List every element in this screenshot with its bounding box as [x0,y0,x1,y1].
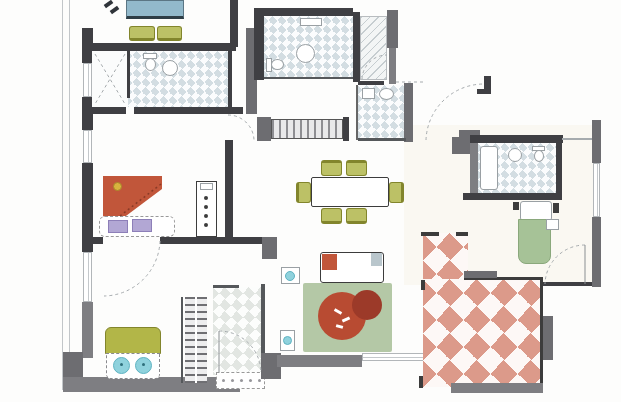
bed-tray [546,219,559,230]
living-stub-wall [262,237,277,259]
hall-door-stub-h [477,89,491,94]
bath-shelf [300,18,322,26]
terrace-tiles-main [423,279,543,387]
terrace-tick-4 [419,376,423,388]
bathroom-right-bottom-wall [463,193,562,200]
grill-mark-1 [104,0,114,8]
window-left-3 [83,252,92,302]
window-left-2 [83,130,92,163]
doormat-dots [222,379,225,382]
right-wing-top-line [562,138,594,140]
nightstand-left [513,202,519,210]
toilet-3-bowl [534,150,544,162]
bathroom-top-left-right-wall [228,51,232,107]
bathroom-center-left-wall [254,16,264,80]
stairs-center-rail [195,297,197,383]
plant-canopy-small [352,290,382,320]
dining-chair-bottom-1 [321,208,342,224]
closet-hatched-floor [360,16,387,80]
nightstand-right [553,203,559,213]
wall-bottom-left [63,377,240,392]
balcony-railing [62,0,70,390]
terrace-wall-right [543,316,553,360]
bookshelf-dots [204,196,208,200]
wardrobe-left-cap [257,117,271,141]
wardrobe-right-cap [343,117,349,141]
wc-left-wall [356,85,358,140]
toilet-2-bowl [271,59,284,70]
bathroom-right-top-wall [470,135,563,143]
floor-plan [0,0,621,402]
sofa-gray-cushion [371,253,382,266]
pillow-dot-2 [142,363,145,366]
closet-right-wall-thick [387,10,398,48]
right-wall-seg1 [592,120,601,163]
single-bed-pillow [520,201,552,221]
shower-right [480,146,498,190]
dining-chair-right [389,182,404,203]
bathroom-closet-divider [353,12,360,82]
sink-2 [296,44,315,63]
study-door-arc [228,115,254,140]
wall-h3-b [134,107,243,114]
wall-h5-b [160,237,277,244]
dining-chair-bottom-2 [346,208,367,224]
corner-sofa-terracotta [103,176,162,219]
toilet-1-bowl [145,58,156,71]
living-bottom-wall [277,355,362,367]
dining-chair-top-2 [346,160,367,176]
balcony-chair-1 [129,26,155,41]
entry-hall-floor [213,287,261,375]
bathroom-right-right-wall [556,135,562,199]
wc-right-wall [404,83,413,142]
bathroom-right-left-wall [470,143,478,194]
wall-top-vertical [230,0,238,47]
wall-h5-a [83,237,103,244]
entry-right-wall [261,284,265,360]
side-table-2-bowl [283,336,292,345]
study-right-wall [225,140,233,237]
wc-cistern [362,88,375,99]
side-table-1-bowl [285,271,295,281]
wall-balcony-divider [90,43,236,51]
sofa-red-cushion [322,254,337,270]
wardrobe-body [271,119,343,139]
terrace-tick-1 [421,232,439,236]
entry-top-wall [213,285,239,288]
wc-bottom-wall [358,138,406,141]
sofa-yellow-cushion [113,182,122,191]
double-bed-duvet [105,327,161,354]
terrace-wall-bottom [451,383,543,393]
balcony-table [126,0,184,19]
bookshelf-top-item [200,183,213,190]
terrace-tiles-upper [423,233,468,285]
sink-1 [162,60,178,76]
grill-mark-2 [110,6,120,14]
bathroom-center-bottom-line [264,77,353,79]
shower-zone [92,51,128,107]
bedroom-left-door-arc [104,241,160,296]
dining-chair-top-1 [321,160,342,176]
window-left-1 [83,63,92,97]
terrace-tick-3 [421,280,425,290]
lavender-cushion-2 [132,219,152,232]
wall-left-seg4 [82,302,93,358]
dining-table [311,177,389,207]
closet-right-wall-thin [389,48,396,84]
stairs-left-rail [181,297,183,383]
dining-chair-left [296,182,311,203]
right-wall-seg2 [592,217,601,287]
terrace-wall-top-stub [464,271,497,278]
lavender-cushion-1 [108,220,128,233]
living-window [362,353,424,361]
bathroom-top-left-divider [127,51,130,98]
pillow-dot-1 [120,363,123,366]
wall-h2-top [254,8,353,16]
terrace-tick-2 [456,232,468,236]
wc-basin [379,88,394,100]
sink-3 [508,148,522,162]
window-right [593,163,600,217]
balcony-chair-2 [157,26,182,41]
wall-h3-a [92,107,126,114]
bedroom-right-bottom-wall [540,282,592,286]
